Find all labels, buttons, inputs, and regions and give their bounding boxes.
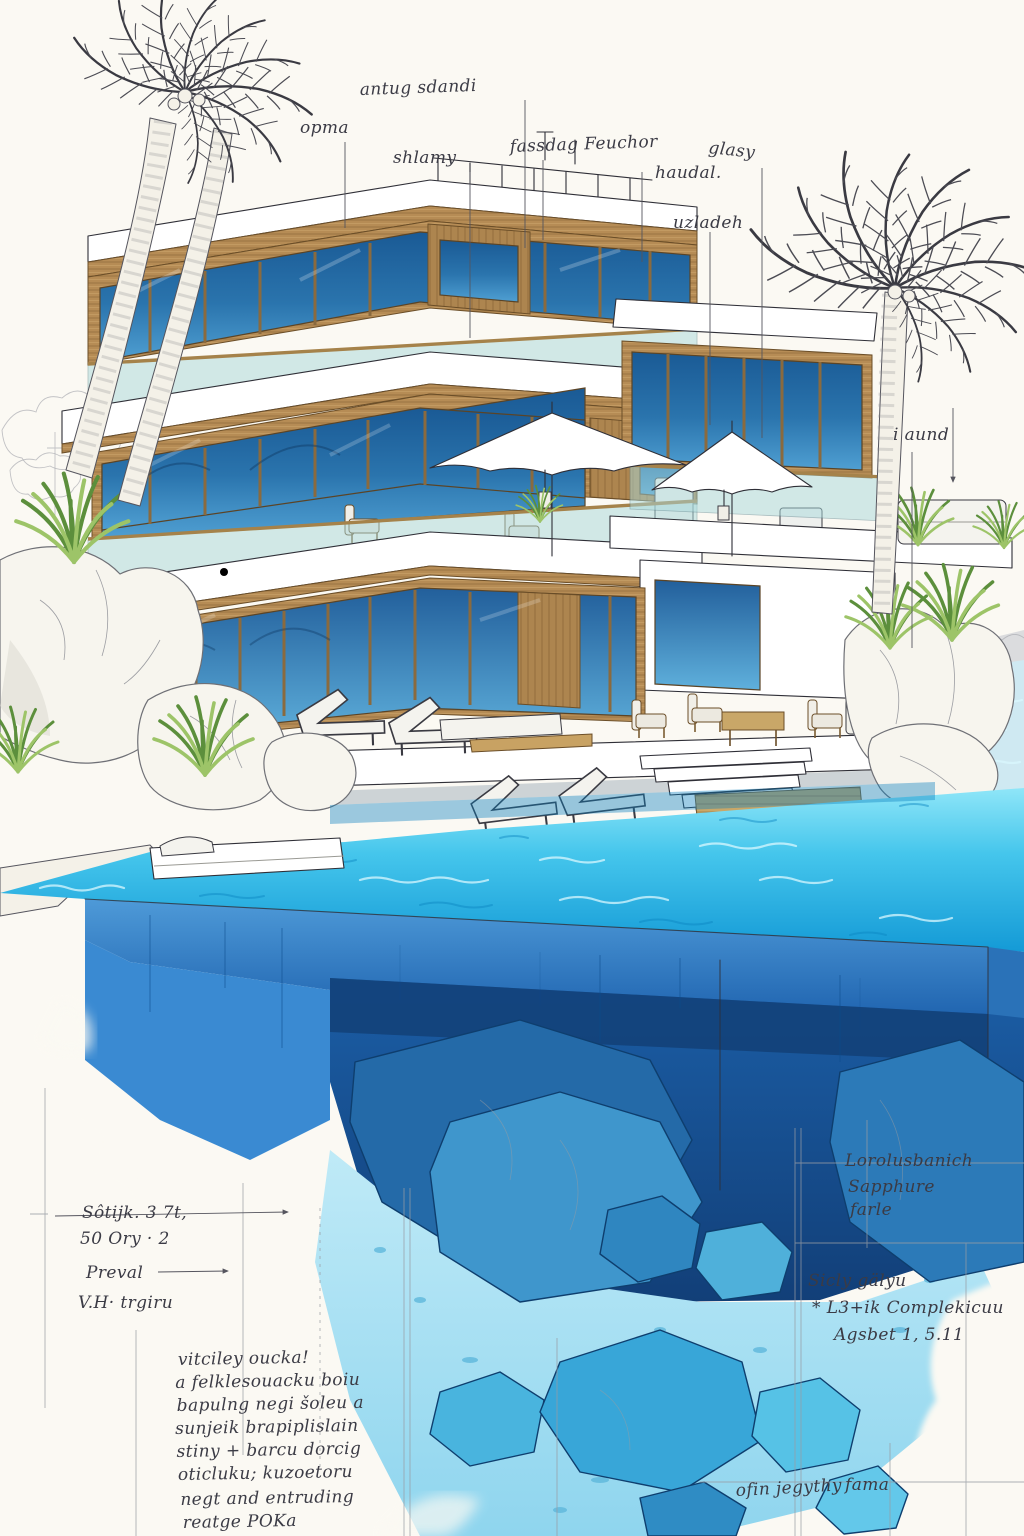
artwork-canvas: antug sdandi opma shlamy fassdag Feuchor…: [0, 0, 1024, 1536]
note-line: reatge POKa: [183, 1511, 297, 1533]
annotation-bottom-b: fama: [843, 1475, 889, 1495]
lower-note-line: Sicly gälyu: [808, 1271, 906, 1291]
note-line: oticluku; kuzoetoru: [178, 1462, 353, 1485]
deep-note-line: farle: [848, 1200, 892, 1220]
annotation-upper-right-c: uzladeh: [673, 213, 743, 233]
note-line: a felklesouacku boiu: [175, 1370, 360, 1393]
annotation-roof: antug sdandi: [359, 76, 477, 100]
annotation-upper-right-b: haudal.: [655, 163, 722, 183]
note-line: sunjeik brapiplislain: [175, 1416, 359, 1439]
annotation-dim-1: Sôtijk. 3 7t,: [82, 1203, 187, 1223]
lower-note-line: Agsbet 1, 5.11: [832, 1325, 964, 1345]
annotation-dim-2: 50 Ory · 2: [80, 1229, 170, 1249]
annotation-left-1: Preval: [85, 1263, 143, 1283]
note-line: negt and entruding: [180, 1487, 354, 1510]
annotation-upper-left: opma: [300, 118, 349, 138]
deep-note-line: Sapphure: [848, 1177, 935, 1197]
annotation-upper-left-2: shlamy: [393, 148, 456, 168]
deep-note-line: Lorolusbanich: [844, 1151, 973, 1171]
note-line: stiny + barcu dorcig: [176, 1439, 361, 1462]
villa-pool-sketch: antug sdandi opma shlamy fassdag Feuchor…: [0, 0, 1024, 1536]
annotation-left-2: V.H· trgiru: [78, 1293, 173, 1313]
annotation-right-side: i aund: [893, 425, 949, 445]
note-line: vitciley oucka!: [178, 1348, 310, 1370]
lower-note-line: * L3+ik Complekicuu: [812, 1298, 1004, 1318]
note-line: bapulng negi šoleu a: [177, 1393, 365, 1416]
